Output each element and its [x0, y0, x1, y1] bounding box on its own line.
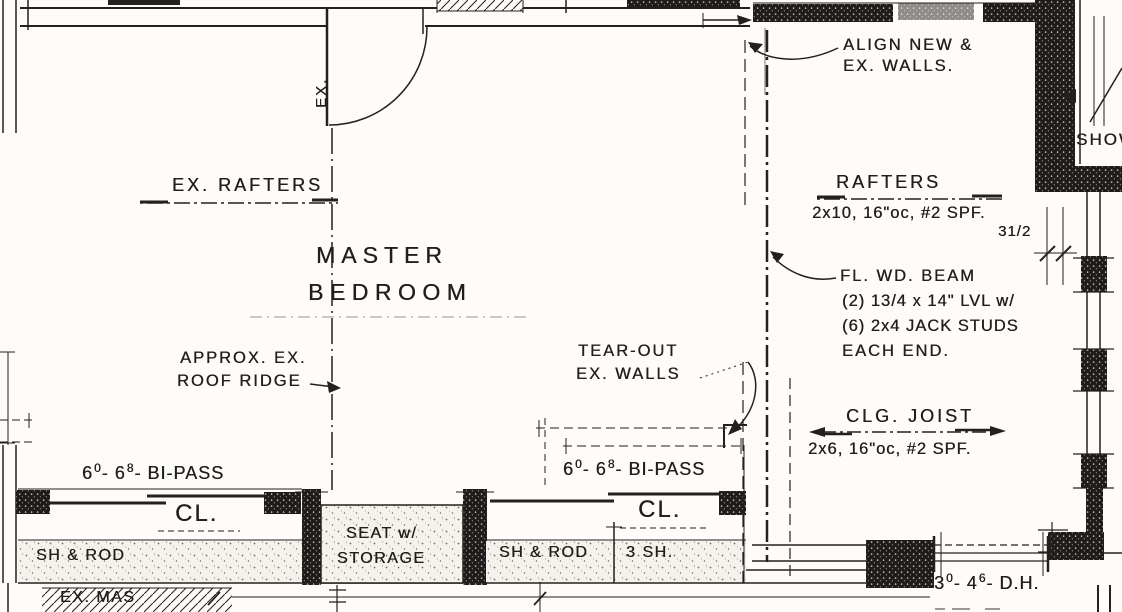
note-beam-line2: (2) 13/4 x 14" LVL w/	[842, 292, 1015, 310]
note-rafters-title: RAFTERS	[836, 173, 941, 193]
shower-room	[1035, 0, 1122, 192]
closet-label-left: CL.	[175, 501, 218, 527]
seat-label-line1: SEAT w/	[346, 525, 417, 543]
note-roof-ridge-line2: ROOF RIDGE	[177, 372, 302, 390]
door-size-bipass-left: 60-68-BI-PASS	[82, 462, 224, 484]
note-ex-rafters: EX. RAFTERS	[172, 176, 323, 196]
closet-label-right: CL.	[638, 497, 681, 523]
note-beam-line3: (6) 2x4 JACK STUDS	[842, 317, 1019, 335]
existing-door-label: EX.	[314, 78, 334, 108]
note-align-walls-line2: EX. WALLS.	[843, 57, 954, 75]
note-tear-out-line2: EX. WALLS	[576, 365, 681, 383]
bipass-door-left	[50, 496, 264, 503]
bipass-door-right	[490, 494, 740, 501]
room-title-line1: MASTER	[316, 243, 448, 268]
shelf-rod-label-left: SH & ROD	[36, 547, 125, 565]
existing-door-swing	[329, 27, 427, 125]
note-roof-ridge-line1: APPROX. EX.	[180, 349, 307, 367]
seat-storage-area	[321, 505, 463, 583]
note-beam-line4: EACH END.	[842, 342, 950, 360]
note-align-walls-line1: ALIGN NEW &	[843, 36, 973, 54]
note-rafters-spec: 2x10, 16"oc, #2 SPF.	[812, 204, 986, 222]
note-clg-joist-title: CLG. JOIST	[846, 407, 974, 427]
door-size-bipass-right: 60-68-BI-PASS	[563, 458, 705, 480]
note-clg-joist-spec: 2x6, 16"oc, #2 SPF.	[808, 440, 971, 458]
three-shelves-label: 3 SH.	[626, 544, 674, 562]
note-tear-out-line1: TEAR-OUT	[578, 342, 678, 360]
east-window-wall	[1038, 192, 1122, 560]
note-beam-line1: FL. WD. BEAM	[840, 267, 976, 285]
floor-plan: ALIGN NEW & EX. WALLS. SHOW EX. RAFTERS …	[0, 0, 1122, 612]
ex-masonry-label: EX. MAS	[60, 589, 135, 607]
room-label-shower: SHOW	[1076, 131, 1122, 150]
seat-label-line2: STORAGE	[337, 550, 425, 568]
room-title-line2: BEDROOM	[308, 280, 472, 305]
left-wall	[0, 0, 16, 583]
window-size-dh: 30-46-D.H.	[934, 572, 1039, 594]
new-wall-top-right	[753, 3, 1063, 22]
shelf-rod-label-right: SH & ROD	[499, 544, 588, 562]
dim-3-1-2: 31/2	[998, 224, 1031, 241]
